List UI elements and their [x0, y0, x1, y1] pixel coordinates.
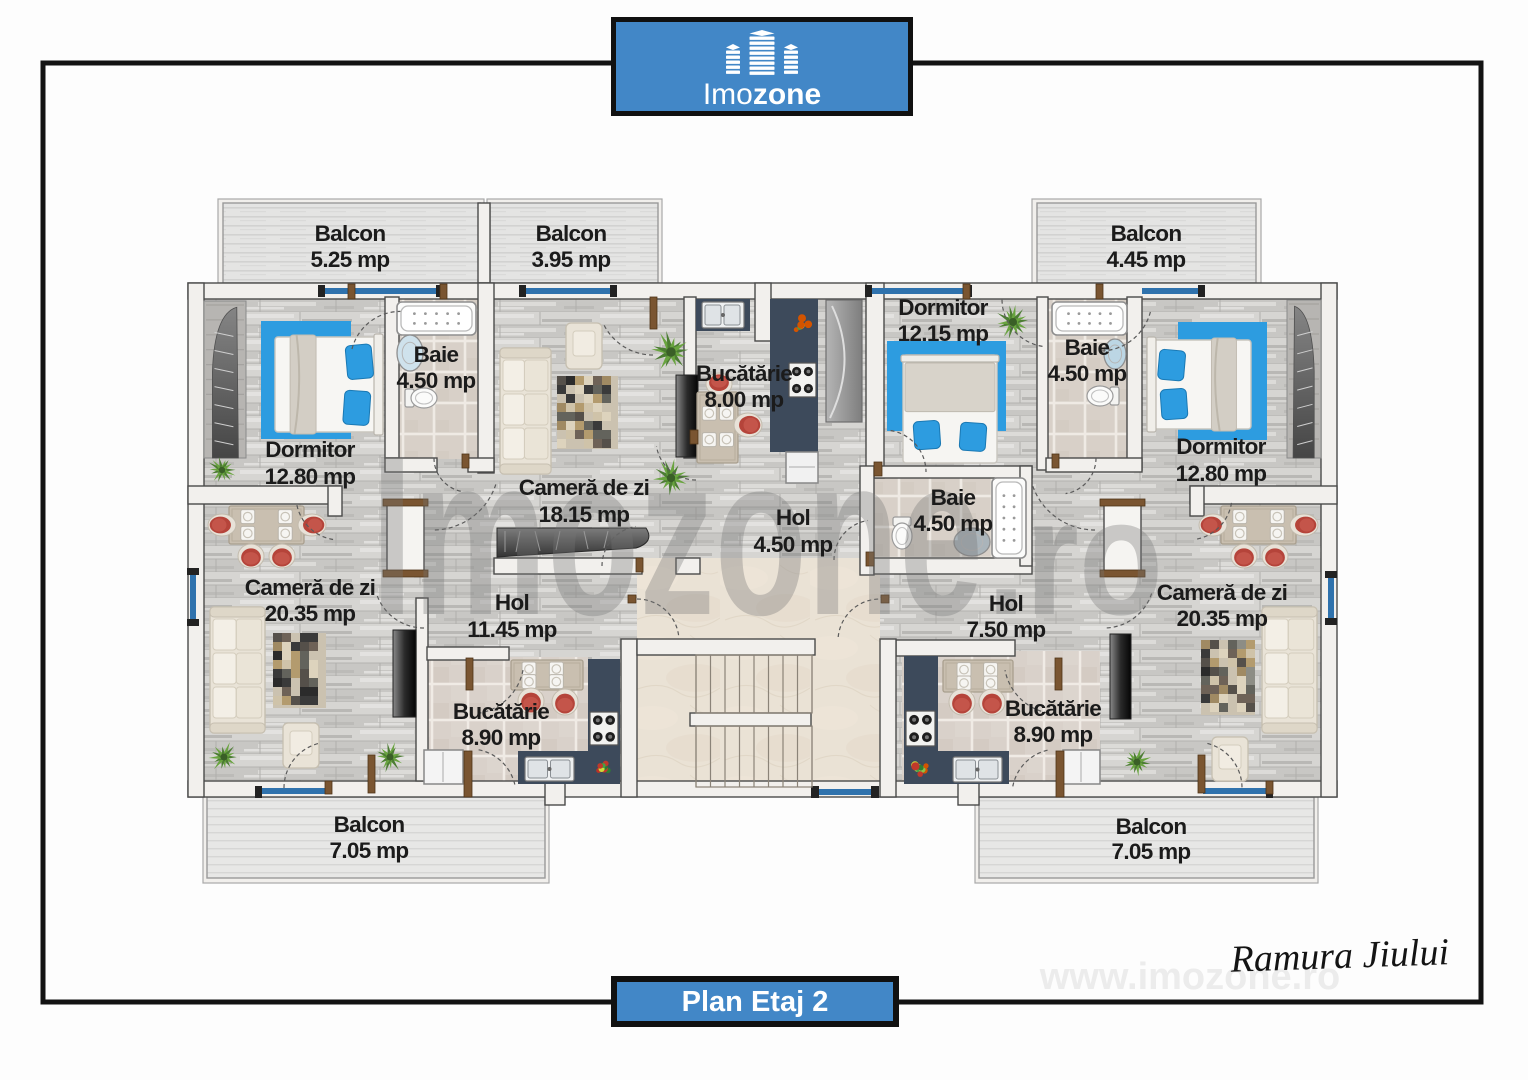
svg-text:Balcon: Balcon: [334, 812, 405, 837]
svg-text:4.45 mp: 4.45 mp: [1107, 247, 1186, 272]
svg-text:Cameră de zi: Cameră de zi: [245, 575, 375, 600]
svg-text:8.90 mp: 8.90 mp: [462, 725, 541, 750]
svg-text:7.50 mp: 7.50 mp: [967, 617, 1046, 642]
svg-text:Baie: Baie: [931, 485, 976, 510]
svg-text:Cameră de zi: Cameră de zi: [519, 475, 649, 500]
svg-text:Imozone: Imozone: [371, 409, 983, 663]
svg-text:11.45 mp: 11.45 mp: [467, 617, 556, 642]
svg-text:3.95 mp: 3.95 mp: [532, 247, 611, 272]
svg-text:4.50 mp: 4.50 mp: [397, 368, 476, 393]
svg-text:8.00 mp: 8.00 mp: [705, 387, 784, 412]
svg-text:Hol: Hol: [495, 590, 529, 615]
svg-text:Baie: Baie: [1065, 335, 1110, 360]
svg-text:Imozone: Imozone: [703, 78, 821, 111]
svg-text:Balcon: Balcon: [536, 221, 607, 246]
svg-text:20.35 mp: 20.35 mp: [1177, 606, 1268, 631]
svg-text:Baie: Baie: [414, 342, 459, 367]
svg-text:Dormitor: Dormitor: [898, 295, 988, 320]
svg-text:18.15 mp: 18.15 mp: [539, 502, 630, 527]
svg-text:4.50 mp: 4.50 mp: [1048, 361, 1127, 386]
svg-text:7.05 mp: 7.05 mp: [330, 838, 409, 863]
svg-text:Bucătărie: Bucătărie: [696, 361, 792, 386]
svg-text:Bucătărie: Bucătărie: [1005, 696, 1101, 721]
svg-text:8.90 mp: 8.90 mp: [1014, 722, 1093, 747]
svg-text:Hol: Hol: [989, 591, 1023, 616]
svg-text:Balcon: Balcon: [1116, 814, 1187, 839]
svg-text:7.05 mp: 7.05 mp: [1112, 839, 1191, 864]
svg-text:12.15 mp: 12.15 mp: [898, 321, 989, 346]
svg-text:12.80 mp: 12.80 mp: [265, 464, 356, 489]
svg-text:Dormitor: Dormitor: [1176, 434, 1266, 459]
svg-text:4.50 mp: 4.50 mp: [754, 532, 833, 557]
svg-text:Cameră de zi: Cameră de zi: [1157, 580, 1287, 605]
svg-text:Balcon: Balcon: [315, 221, 386, 246]
svg-text:5.25 mp: 5.25 mp: [311, 247, 390, 272]
svg-text:20.35 mp: 20.35 mp: [265, 601, 356, 626]
svg-text:12.80 mp: 12.80 mp: [1176, 461, 1267, 486]
svg-text:Ramura Jiului: Ramura Jiului: [1229, 931, 1450, 981]
svg-text:Plan Etaj 2: Plan Etaj 2: [682, 986, 829, 1018]
svg-text:4.50 mp: 4.50 mp: [914, 511, 993, 536]
svg-text:Balcon: Balcon: [1111, 221, 1182, 246]
svg-text:Hol: Hol: [776, 505, 810, 530]
svg-text:Bucătărie: Bucătărie: [453, 699, 549, 724]
svg-text:Dormitor: Dormitor: [265, 437, 355, 462]
